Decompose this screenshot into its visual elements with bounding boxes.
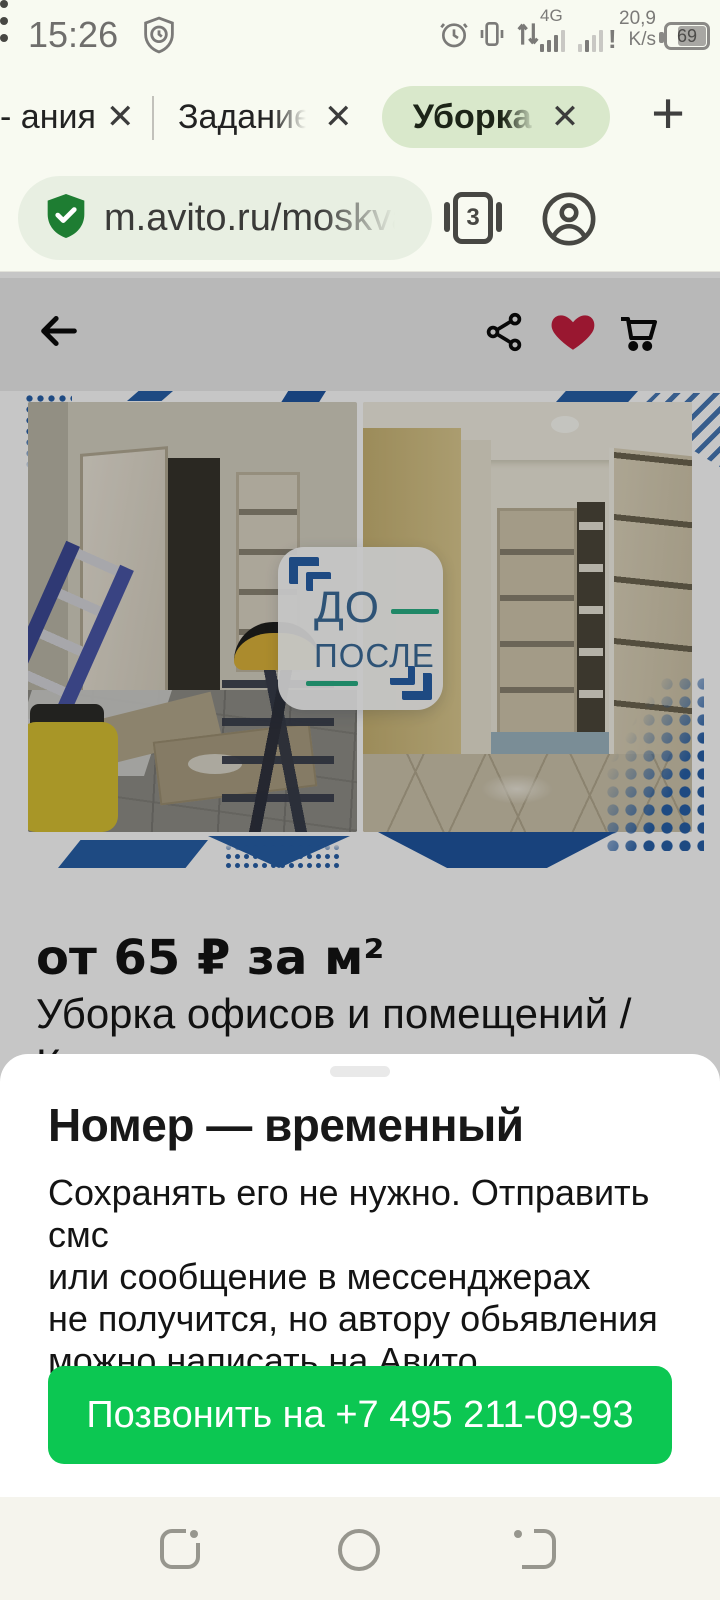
tab-1-label: ания -	[0, 98, 96, 136]
tab-2[interactable]: Задание М ✕	[178, 84, 368, 150]
tab-3-active[interactable]: Уборка оф ✕	[382, 86, 610, 148]
new-tab-button[interactable]: +	[640, 80, 696, 146]
alarm-icon	[438, 18, 470, 55]
tab-1-close-icon[interactable]: ✕	[106, 100, 135, 134]
tab-2-close-icon[interactable]: ✕	[324, 100, 353, 134]
home-icon[interactable]	[338, 1529, 380, 1571]
signal-bars2-icon	[578, 30, 603, 52]
battery-level: 69	[667, 26, 707, 47]
data-arrows-icon	[514, 18, 542, 55]
profile-icon[interactable]	[540, 190, 598, 253]
sheet-body-line: или сообщение в мессенджерах	[48, 1256, 720, 1298]
network-type: 4G	[540, 6, 574, 26]
url-text: m.avito.ru/moskva	[104, 197, 404, 240]
shield-clock-icon	[142, 16, 176, 59]
tab-3-label: Уборка оф	[413, 98, 539, 136]
tab-count-button[interactable]: 3	[446, 190, 500, 248]
sheet-body: Сохранять его не нужно. Отправить смс ил…	[48, 1172, 720, 1382]
url-bar[interactable]: m.avito.ru/moskva	[18, 176, 432, 260]
bottom-sheet: Номер — временный Сохранять его не нужно…	[0, 1054, 720, 1497]
phone-screen: 15:26 4G ! 20,9 K/s	[0, 0, 720, 1600]
status-bar: 15:26 4G ! 20,9 K/s	[0, 0, 720, 72]
system-navbar	[0, 1497, 720, 1600]
signal-bars-icon	[540, 30, 565, 52]
shield-secure-icon[interactable]	[44, 192, 88, 245]
recents-icon[interactable]	[160, 1529, 200, 1569]
tab-1[interactable]: ания - ✕	[0, 84, 148, 150]
tab-2-label: Задание М	[178, 98, 310, 136]
clock-time: 15:26	[28, 14, 118, 56]
back-icon[interactable]	[522, 1529, 556, 1569]
call-button[interactable]: Позвонить на +7 495 211-09-93	[48, 1366, 672, 1464]
battery-icon: 69	[664, 22, 710, 50]
sheet-body-line: Сохранять его не нужно. Отправить смс	[48, 1172, 720, 1256]
tab-count-value: 3	[453, 192, 493, 244]
browser-chrome: 15:26 4G ! 20,9 K/s	[0, 0, 720, 272]
network-speed: 20,9 K/s	[612, 8, 656, 50]
vibrate-icon	[476, 18, 508, 55]
tab-divider	[152, 96, 154, 140]
tab-strip: ания - ✕ Задание М ✕ Уборка оф ✕ +	[0, 84, 720, 150]
sheet-body-line: не получится, но автору обьявления	[48, 1298, 720, 1340]
sheet-title: Номер — временный	[48, 1098, 524, 1152]
drag-handle[interactable]	[330, 1066, 390, 1077]
tab-3-close-icon[interactable]: ✕	[551, 100, 580, 134]
